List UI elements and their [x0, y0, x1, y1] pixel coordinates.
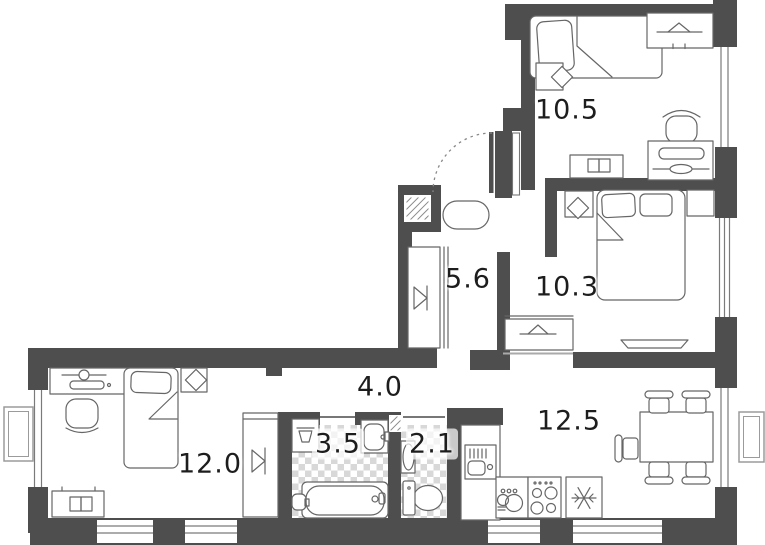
room-label-bedroom-right: 10.3	[535, 272, 599, 303]
sink-icon	[361, 420, 389, 453]
nightstand-icon	[687, 190, 714, 216]
room-label-corridor: 4.0	[357, 372, 403, 403]
kitchen-sink-icon	[465, 445, 496, 479]
entry-door-icon	[433, 132, 494, 193]
dresser-icon	[52, 487, 104, 517]
dining-table-icon	[640, 412, 713, 462]
chair-icon	[682, 391, 710, 413]
room-label-bedroom-top: 10.5	[535, 95, 599, 126]
fridge-snowflake-icon	[566, 477, 602, 518]
room-label-living-kitchen: 12.5	[537, 406, 601, 437]
chair-icon	[682, 462, 710, 484]
double-bed-icon	[597, 190, 685, 300]
wardrobe-hanger-icon	[505, 316, 573, 350]
furniture-layer	[0, 0, 765, 545]
dish-cabinet-icon	[496, 477, 528, 518]
dressing-table-icon	[648, 141, 713, 180]
chair-icon	[645, 462, 673, 484]
chair-icon	[615, 435, 638, 462]
chair-icon	[645, 391, 673, 413]
tv-icon	[621, 340, 688, 348]
stove-icon	[528, 477, 561, 518]
nightstand-lamp-icon	[565, 191, 593, 219]
closet-mirror-icon	[243, 413, 278, 517]
single-bed-icon	[124, 368, 178, 468]
desk-chair-icon	[66, 399, 98, 433]
room-label-wc: 2.1	[406, 429, 458, 460]
dressing-table-icon	[50, 368, 128, 394]
nightstand-lamp-icon	[181, 368, 207, 392]
wardrobe-hanger-icon	[647, 13, 713, 49]
room-label-bedroom-left: 12.0	[178, 449, 242, 480]
toilet-icon	[403, 481, 443, 515]
bathtub-icon	[302, 482, 388, 518]
door-leaf-icon	[513, 133, 520, 195]
room-label-bathroom: 3.5	[312, 429, 364, 460]
closet-mirror-icon	[408, 247, 448, 348]
floor-plan: 10.5 10.3 5.6 4.0 12.5 12.0 3.5 2.1	[0, 0, 765, 545]
pouf-icon	[443, 201, 489, 229]
dresser-icon	[570, 155, 623, 178]
room-label-hallway: 5.6	[445, 264, 491, 295]
desk-chair-icon	[663, 111, 700, 144]
